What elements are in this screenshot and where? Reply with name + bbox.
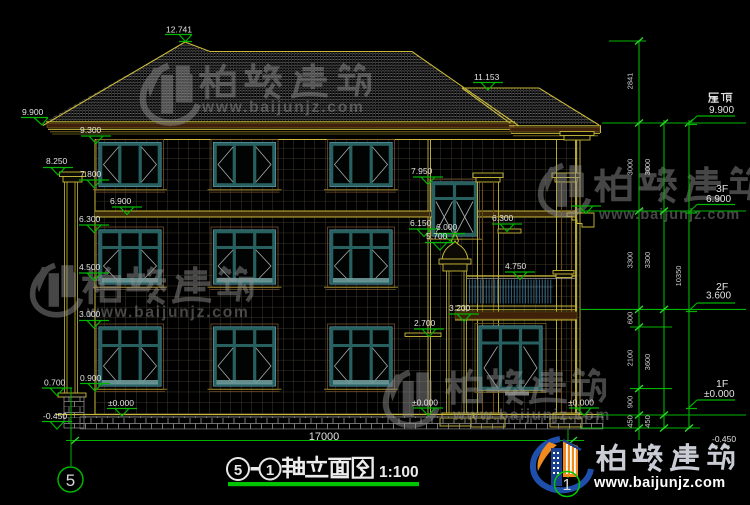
- svg-text:6.150: 6.150: [410, 218, 432, 228]
- svg-text:900: 900: [626, 396, 635, 409]
- svg-text:450: 450: [626, 415, 635, 428]
- svg-text:10350: 10350: [674, 266, 683, 287]
- svg-text:11.153: 11.153: [474, 72, 500, 82]
- svg-text:-0.450: -0.450: [43, 411, 67, 421]
- svg-text:6.300: 6.300: [79, 214, 101, 224]
- svg-text:4.500: 4.500: [79, 262, 101, 272]
- svg-text:3300: 3300: [643, 252, 652, 269]
- svg-text:2.700: 2.700: [414, 318, 436, 328]
- svg-text:6.900: 6.900: [110, 196, 132, 206]
- svg-text:9.300: 9.300: [80, 125, 102, 135]
- svg-text:-0.450: -0.450: [712, 434, 736, 444]
- svg-text:www.baijunjz.com: www.baijunjz.com: [201, 99, 365, 116]
- svg-text:5: 5: [66, 471, 75, 490]
- svg-text:8.250: 8.250: [46, 156, 68, 166]
- svg-text:5: 5: [234, 462, 242, 479]
- svg-text:5.700: 5.700: [426, 231, 448, 241]
- svg-text:4.750: 4.750: [505, 261, 527, 271]
- svg-text:0.700: 0.700: [44, 378, 66, 388]
- svg-text:6.300: 6.300: [492, 213, 514, 223]
- svg-text:0.900: 0.900: [80, 373, 102, 383]
- svg-text:3.600: 3.600: [706, 291, 731, 302]
- svg-text:450: 450: [643, 415, 652, 428]
- svg-text:1: 1: [266, 462, 274, 479]
- svg-text:1: 1: [563, 477, 572, 494]
- svg-text:www.baijunjz.com: www.baijunjz.com: [598, 207, 740, 223]
- svg-text:6.900: 6.900: [706, 194, 731, 205]
- svg-text:2841: 2841: [626, 73, 635, 90]
- svg-text:±0.000: ±0.000: [568, 398, 594, 408]
- svg-text:3000: 3000: [626, 159, 635, 176]
- svg-text:3.000: 3.000: [79, 309, 101, 319]
- svg-text:12.741: 12.741: [166, 25, 192, 35]
- svg-text:1:100: 1:100: [379, 464, 419, 481]
- svg-text:±0.000: ±0.000: [704, 389, 735, 400]
- svg-text:www.baijunjz.com: www.baijunjz.com: [86, 304, 250, 321]
- svg-text:±0.000: ±0.000: [412, 398, 438, 408]
- svg-text:±0.000: ±0.000: [108, 398, 134, 408]
- svg-text:3.200: 3.200: [449, 303, 471, 313]
- svg-text:3000: 3000: [643, 159, 652, 176]
- svg-text:www.baijunjz.com: www.baijunjz.com: [452, 407, 611, 424]
- svg-text:3300: 3300: [626, 252, 635, 269]
- svg-text:7.950: 7.950: [411, 166, 433, 176]
- svg-text:17000: 17000: [309, 431, 340, 443]
- svg-text:9.900: 9.900: [709, 105, 734, 116]
- svg-text:7.800: 7.800: [80, 169, 102, 179]
- svg-text:9.900: 9.900: [22, 107, 44, 117]
- svg-text:www.baijunjz.com: www.baijunjz.com: [593, 475, 726, 491]
- svg-text:2100: 2100: [626, 350, 635, 367]
- svg-text:3600: 3600: [643, 354, 652, 371]
- svg-text:600: 600: [626, 312, 635, 325]
